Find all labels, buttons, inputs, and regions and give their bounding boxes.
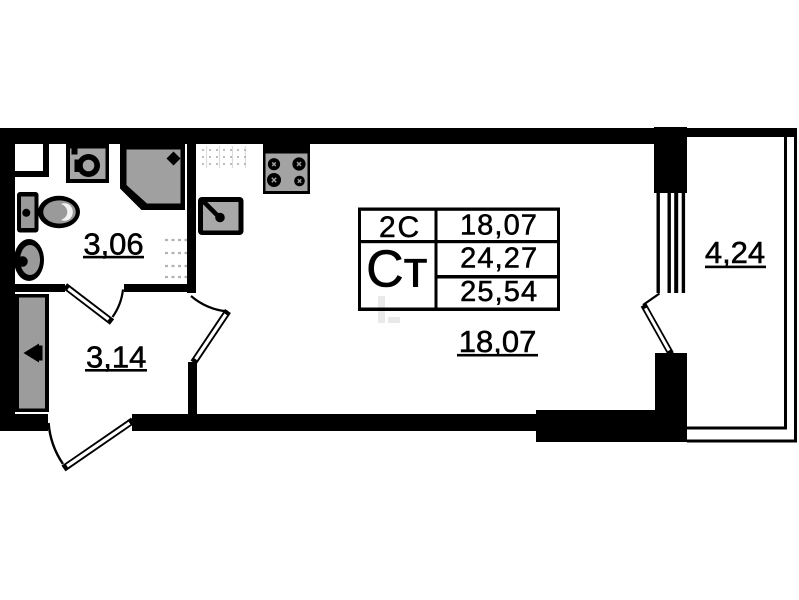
svg-text:4,24: 4,24 [705, 235, 765, 270]
svg-text:25,54: 25,54 [460, 276, 538, 308]
svg-text:24,27: 24,27 [460, 243, 538, 275]
svg-text:2С: 2С [379, 211, 421, 244]
svg-text:Ст: Ст [366, 241, 427, 299]
svg-text:18,07: 18,07 [460, 210, 538, 242]
